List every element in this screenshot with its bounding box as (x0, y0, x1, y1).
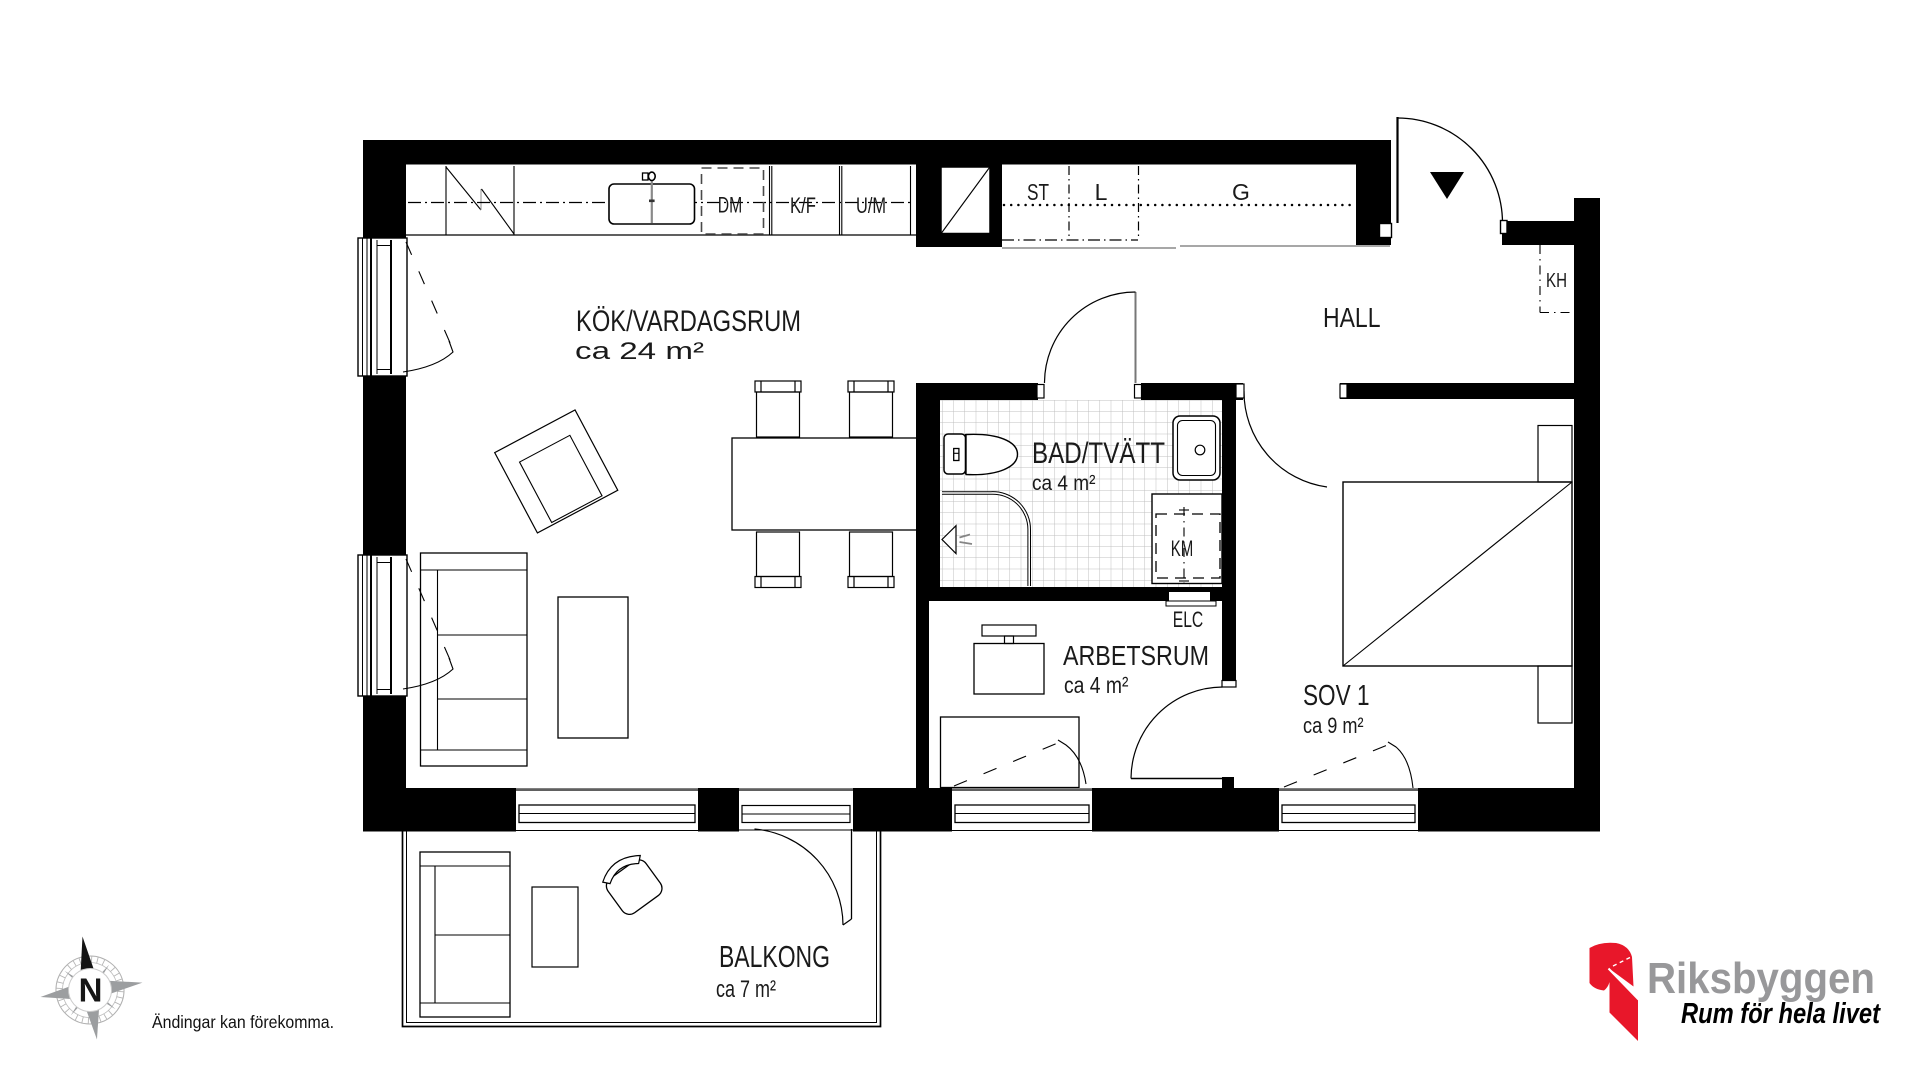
svg-text:Rum för hela livet: Rum för hela livet (1681, 998, 1881, 1030)
svg-text:KÖK/VARDAGSRUM: KÖK/VARDAGSRUM (576, 305, 801, 338)
svg-text:ST: ST (1027, 179, 1049, 205)
svg-text:BALKONG: BALKONG (719, 939, 830, 974)
svg-text:ca 7 m²: ca 7 m² (716, 976, 776, 1003)
svg-text:K/F: K/F (790, 193, 816, 218)
svg-text:N: N (79, 972, 103, 1009)
svg-text:ca 4 m²: ca 4 m² (1032, 471, 1096, 495)
svg-text:Riksbyggen: Riksbyggen (1647, 954, 1875, 1003)
svg-text:L: L (1095, 179, 1108, 205)
svg-text:ARBETSRUM: ARBETSRUM (1063, 640, 1209, 671)
svg-text:KM: KM (1171, 536, 1194, 561)
svg-text:ca 24 m²: ca 24 m² (575, 338, 704, 365)
svg-text:ca 9 m²: ca 9 m² (1303, 713, 1364, 738)
svg-text:Ändingar kan förekomma.: Ändingar kan förekomma. (152, 1012, 334, 1032)
svg-text:BAD/TVÄTT: BAD/TVÄTT (1032, 437, 1165, 470)
svg-text:SOV 1: SOV 1 (1303, 680, 1370, 712)
svg-text:ca 4 m²: ca 4 m² (1064, 672, 1129, 698)
svg-text:HALL: HALL (1323, 302, 1381, 333)
svg-text:U/M: U/M (856, 193, 886, 218)
svg-text:ELC: ELC (1173, 607, 1204, 632)
svg-text:DM: DM (718, 193, 743, 218)
svg-text:KH: KH (1546, 270, 1567, 292)
svg-text:G: G (1232, 179, 1250, 205)
